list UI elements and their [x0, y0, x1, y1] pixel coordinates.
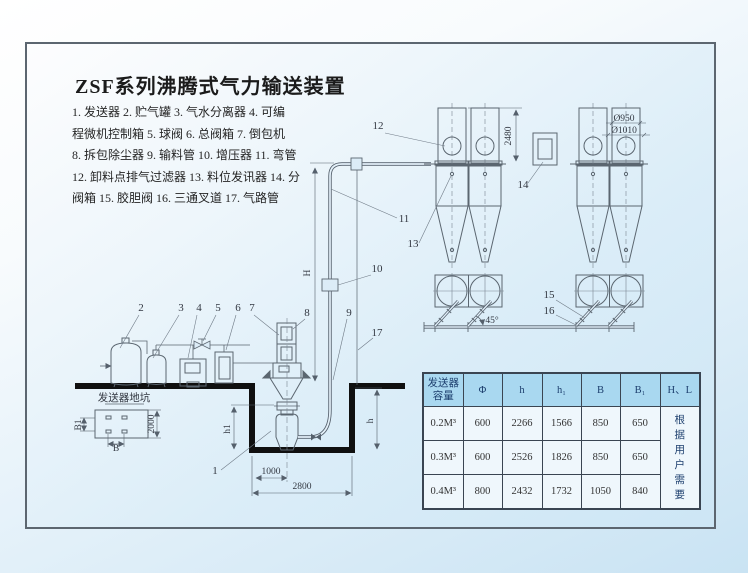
- distribution-valve-box: [533, 133, 557, 165]
- callout-10: 10: [372, 263, 384, 275]
- collector-pipe: [424, 322, 634, 332]
- callout-12: 12: [373, 120, 384, 132]
- cell-h1: 1566: [542, 407, 581, 441]
- bag-dump-station: [263, 323, 310, 399]
- cell-h: 2266: [502, 407, 542, 441]
- legend-line: 12. 卸料点排气过滤器 13. 料位发讯器 14. 分: [72, 167, 334, 189]
- cell-B: 850: [581, 407, 620, 441]
- cell-capacity: 0.4M³: [423, 475, 463, 510]
- dim-1010: Ø1010: [611, 126, 637, 136]
- cell-phi: 800: [463, 475, 502, 510]
- dim-B: B: [113, 444, 119, 454]
- header-h: h: [502, 373, 542, 407]
- callout-17: 17: [372, 327, 384, 339]
- callout-7: 7: [249, 302, 255, 314]
- cell-B1: 650: [620, 441, 660, 475]
- cell-B1: 840: [620, 475, 660, 510]
- legend-line: 1. 发送器 2. 贮气罐 3. 气水分离器 4. 可编: [72, 102, 334, 124]
- header-h1: h₁: [542, 373, 581, 407]
- ball-valve: [194, 339, 210, 349]
- dim-h: h: [366, 418, 376, 423]
- dim-950: Ø950: [613, 114, 634, 124]
- page-title: ZSF系列沸腾式气力输送装置: [75, 70, 346, 99]
- dim-h1: h1: [223, 424, 233, 434]
- dim-2000: 2000: [147, 414, 157, 433]
- discharge-unit: [576, 103, 610, 270]
- cell-B: 1050: [581, 475, 620, 510]
- dim-2480: 2480: [504, 126, 514, 145]
- table-row: 0.3M³ 600 2526 1826 850 650: [423, 441, 700, 475]
- page: { "title": "ZSF系列沸腾式气力输送装置", "legend": {…: [0, 0, 748, 573]
- callout-3: 3: [178, 302, 184, 314]
- header-HL: H、L: [660, 373, 700, 407]
- callout-5: 5: [215, 302, 221, 314]
- legend-line: 8. 拆包除尘器 9. 输料管 10. 增压器 11. 弯管: [72, 145, 334, 167]
- header-phi: Φ: [463, 373, 502, 407]
- cell-capacity: 0.3M³: [423, 441, 463, 475]
- callout-11: 11: [399, 213, 410, 225]
- callout-16: 16: [544, 305, 556, 317]
- specification-table: 发送器容量 Φ h h₁ B B₁ H、L 0.2M³ 600 2266 156…: [422, 372, 701, 510]
- discharge-unit: [435, 103, 469, 270]
- dim-2800: 2800: [293, 482, 312, 492]
- table-row: 0.2M³ 600 2266 1566 850 650 根据用户需要: [423, 407, 700, 441]
- cell-phi: 600: [463, 407, 502, 441]
- cell-B1: 650: [620, 407, 660, 441]
- callout-4: 4: [196, 302, 202, 314]
- booster: [322, 279, 338, 291]
- angle-label: 45°: [485, 315, 499, 326]
- plan-view: [424, 273, 645, 332]
- drop-pipes: [435, 301, 632, 326]
- cell-h1: 1826: [542, 441, 581, 475]
- pit-plan-label: 发送器地坑: [98, 391, 151, 404]
- dim-B1: B1: [74, 419, 84, 430]
- callout-14: 14: [518, 179, 530, 191]
- cell-h: 2526: [502, 441, 542, 475]
- callout-8: 8: [304, 307, 310, 319]
- plc-control-cabinet: [180, 359, 206, 387]
- cell-h1: 1732: [542, 475, 581, 510]
- cell-note: 根据用户需要: [660, 407, 700, 510]
- header-B1: B₁: [620, 373, 660, 407]
- table-row: 0.4M³ 800 2432 1732 1050 840: [423, 475, 700, 510]
- cell-phi: 600: [463, 441, 502, 475]
- cell-h: 2432: [502, 475, 542, 510]
- header-capacity: 发送器容量: [423, 373, 463, 407]
- air-water-separator: [147, 345, 166, 387]
- table-header-row: 发送器容量 Φ h h₁ B B₁ H、L: [423, 373, 700, 407]
- cell-capacity: 0.2M³: [423, 407, 463, 441]
- air-storage-tank: [100, 338, 147, 387]
- main-valve-cabinet: [215, 352, 233, 383]
- callout-13: 13: [408, 238, 420, 250]
- callout-2: 2: [138, 302, 144, 314]
- callout-15: 15: [544, 289, 556, 301]
- dim-H: H: [303, 269, 313, 276]
- header-B: B: [581, 373, 620, 407]
- callout-1: 1: [212, 465, 218, 477]
- callout-6: 6: [235, 302, 241, 314]
- parts-legend: 1. 发送器 2. 贮气罐 3. 气水分离器 4. 可编 程微机控制箱 5. 球…: [72, 102, 334, 210]
- legend-line: 阀箱 15. 胶胆阀 16. 三通叉道 17. 气路管: [72, 188, 334, 210]
- cell-B: 850: [581, 441, 620, 475]
- discharge-unit: [468, 103, 502, 270]
- pipe-coupling: [351, 158, 362, 170]
- dim-1000: 1000: [262, 467, 281, 477]
- legend-line: 程微机控制箱 5. 球阀 6. 总阀箱 7. 倒包机: [72, 124, 334, 146]
- callout-9: 9: [346, 307, 352, 319]
